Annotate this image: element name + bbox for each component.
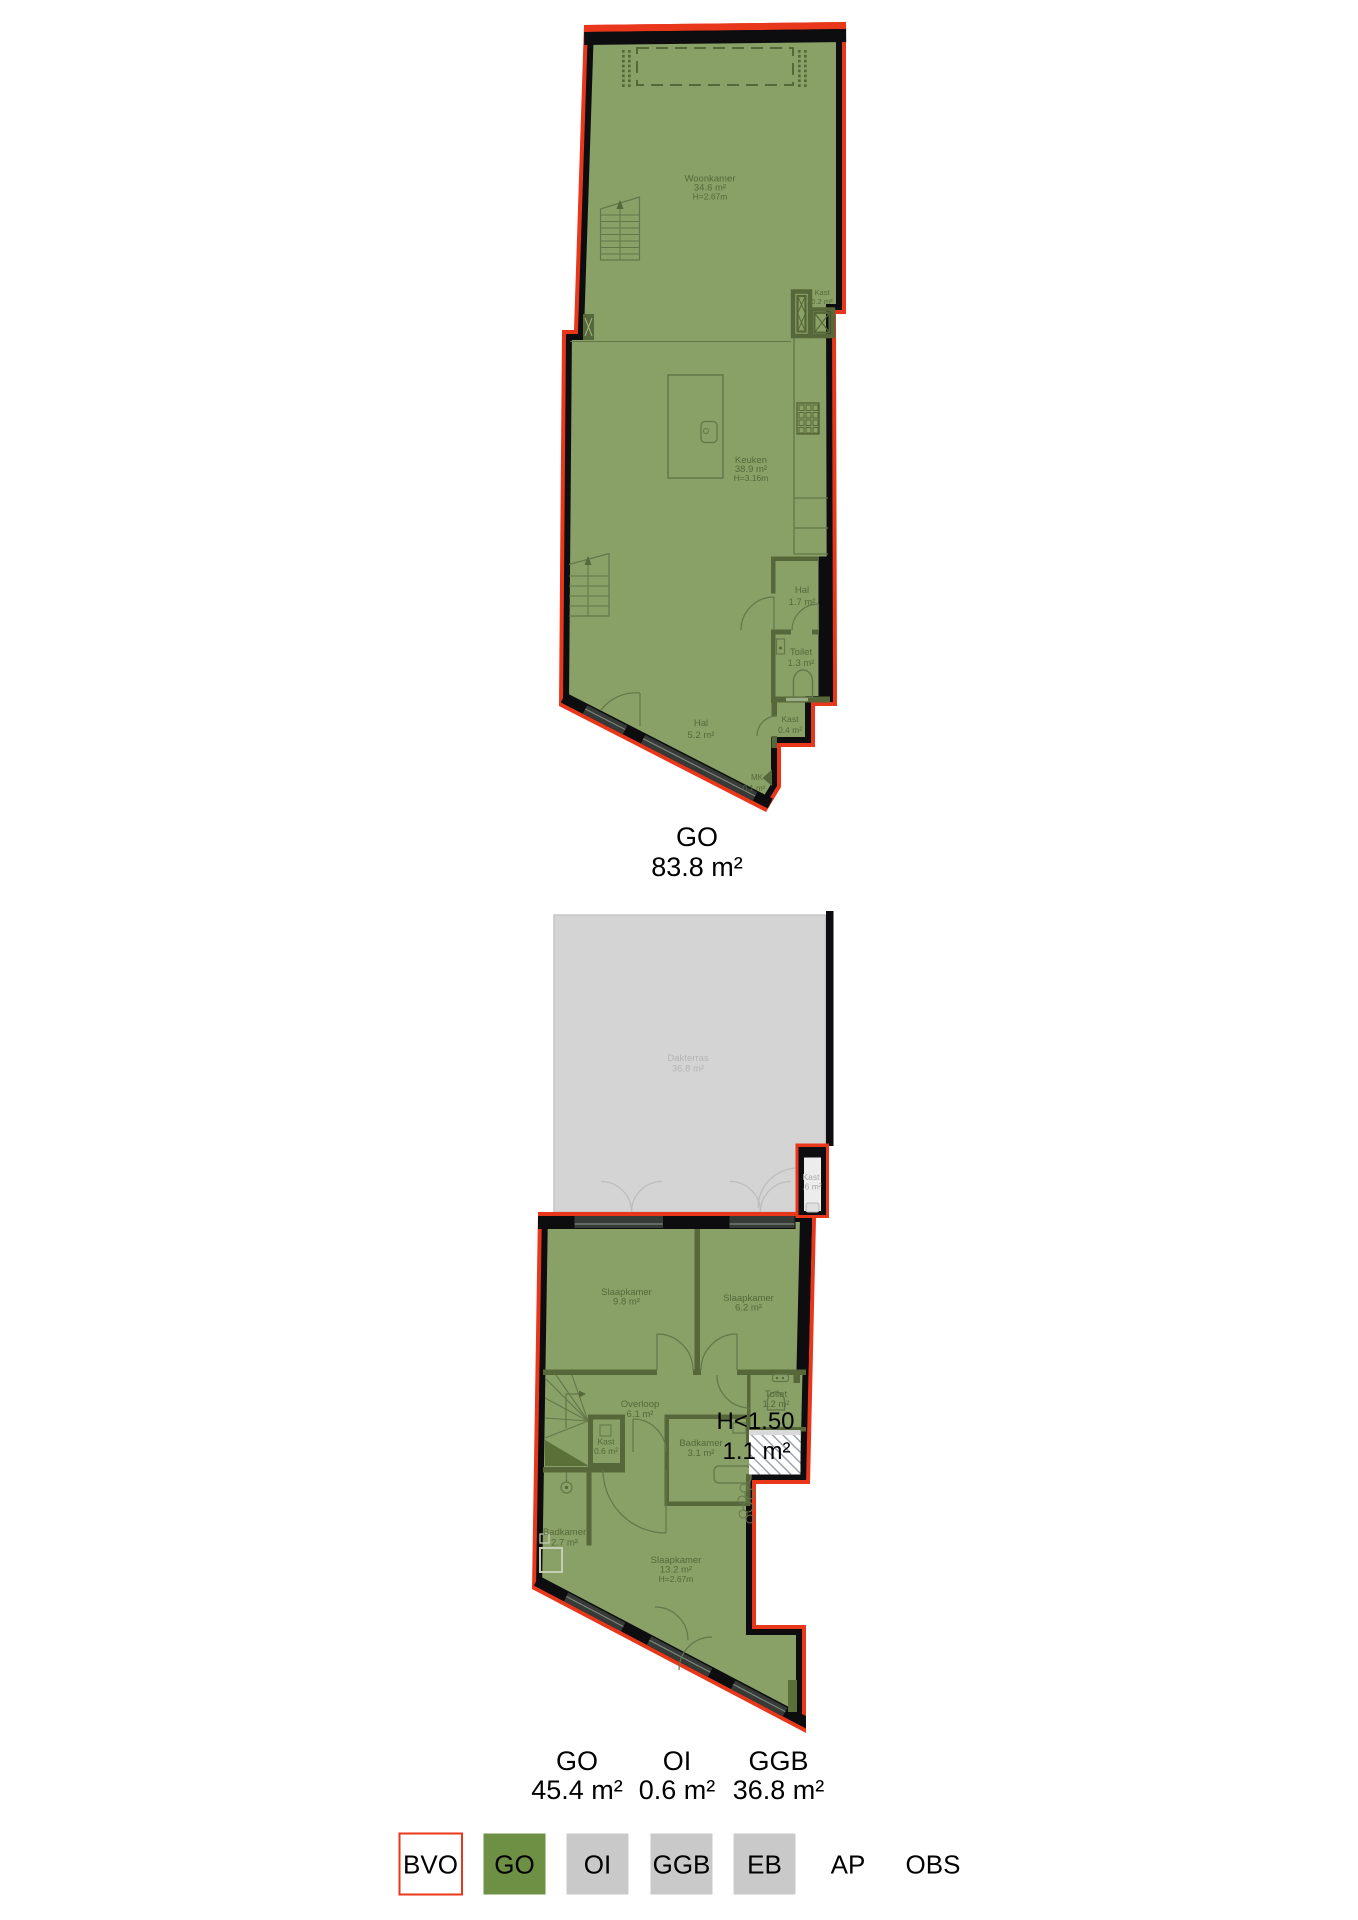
svg-text:0.2 m²: 0.2 m² [811,297,833,306]
svg-text:0.6 m²: 0.6 m² [639,1775,716,1805]
svg-text:GGB: GGB [748,1746,808,1776]
svg-text:0.4 m²: 0.4 m² [778,725,802,735]
svg-text:2.7 m²: 2.7 m² [551,1538,578,1549]
svg-text:BVO: BVO [403,1850,458,1880]
svg-text:Kast: Kast [802,1172,820,1182]
svg-text:GO: GO [676,822,718,852]
svg-text:1.2 m²: 1.2 m² [763,1399,790,1410]
svg-text:GO: GO [494,1850,534,1880]
svg-text:45.4 m²: 45.4 m² [531,1775,623,1805]
svg-text:5.2 m²: 5.2 m² [688,730,715,741]
svg-text:Kast: Kast [781,714,799,724]
svg-text:Hal: Hal [694,718,708,729]
svg-text:GGB: GGB [653,1850,711,1880]
svg-text:0.6 m²: 0.6 m² [594,1446,618,1456]
svg-text:MK: MK [751,773,764,782]
svg-text:36.8 m²: 36.8 m² [672,1064,704,1075]
svg-text:EB: EB [747,1850,782,1880]
svg-text:Dakterras: Dakterras [667,1053,708,1064]
svg-text:H=2.67m: H=2.67m [693,192,728,202]
svg-text:1.1 m²: 1.1 m² [722,1438,790,1465]
svg-text:83.8 m²: 83.8 m² [651,852,743,882]
svg-text:OI: OI [663,1746,692,1776]
svg-text:Toilet: Toilet [790,647,813,658]
svg-text:9.8 m²: 9.8 m² [613,1297,640,1308]
svg-text:Kast: Kast [597,1437,615,1447]
svg-text:Badkamer: Badkamer [543,1527,586,1538]
svg-text:3.1 m²: 3.1 m² [688,1448,715,1459]
svg-text:6.2 m²: 6.2 m² [735,1303,762,1314]
svg-text:1.7 m²: 1.7 m² [789,597,816,608]
svg-text:OBS: OBS [906,1850,961,1880]
svg-text:H=3.16m: H=3.16m [734,473,769,483]
svg-text:6.1 m²: 6.1 m² [627,1409,654,1420]
svg-text:OI: OI [584,1850,611,1880]
svg-text:1.3 m²: 1.3 m² [788,658,815,669]
svg-text:36.8 m²: 36.8 m² [733,1775,825,1805]
svg-text:H<1.50: H<1.50 [716,1408,794,1435]
svg-text:AP: AP [831,1850,866,1880]
svg-text:H=2.67m: H=2.67m [659,1574,694,1584]
svg-text:Kast: Kast [814,288,830,297]
svg-text:GO: GO [556,1746,598,1776]
svg-text:0.1 m²: 0.1 m² [743,784,766,793]
svg-text:.6 m²: .6 m² [802,1182,822,1192]
svg-text:Hal: Hal [795,585,809,596]
